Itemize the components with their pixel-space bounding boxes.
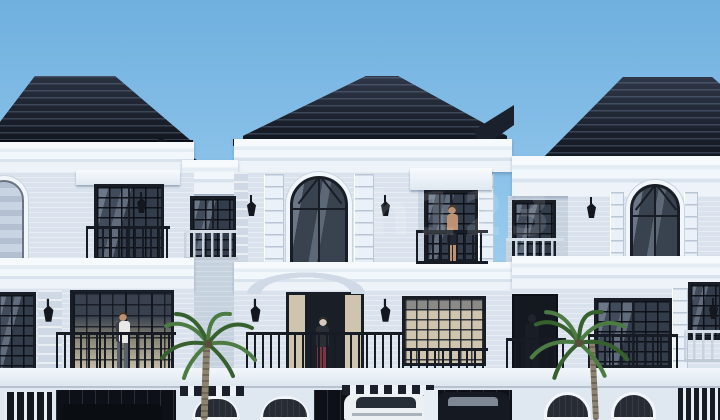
dark-suv bbox=[438, 392, 510, 420]
right-arch-window bbox=[626, 180, 684, 266]
townhouse-rendering: h123 bbox=[0, 0, 720, 420]
arch-transom bbox=[633, 215, 677, 217]
middle-arch-glass bbox=[290, 176, 348, 266]
palm-right-fronds bbox=[526, 304, 632, 386]
suv-windshield bbox=[356, 397, 416, 408]
middle-2f-wall-lamp-left-icon bbox=[246, 195, 257, 219]
arch-transom bbox=[293, 208, 345, 210]
person-head bbox=[319, 317, 327, 326]
middle-1f-wall-lamp-right-icon bbox=[379, 299, 391, 325]
car-in-left-garage bbox=[62, 404, 162, 420]
left-cornice bbox=[0, 142, 194, 172]
right-2f-wall-lamp-icon bbox=[586, 197, 597, 221]
left-window-header bbox=[76, 170, 180, 185]
middle-garage-column bbox=[424, 390, 438, 420]
connector-left-railing bbox=[184, 230, 238, 260]
dark-suv-windshield bbox=[448, 397, 498, 406]
middle-arch-quoin-left bbox=[264, 174, 284, 272]
arch-grille bbox=[547, 395, 588, 417]
middle-arch-window bbox=[286, 172, 352, 264]
left-edge-1f-window bbox=[0, 292, 36, 374]
watermark: h123 bbox=[368, 180, 556, 250]
left-transom-row bbox=[180, 386, 244, 396]
arch-grille bbox=[263, 399, 307, 417]
right-edge-railing bbox=[684, 330, 720, 362]
middle-door-pediment bbox=[240, 264, 372, 294]
left-floor-divider bbox=[0, 258, 194, 290]
left-fence-slats bbox=[4, 392, 52, 420]
arch-fan-muntin bbox=[319, 176, 342, 204]
arch-fan-muntin bbox=[655, 184, 677, 210]
person-head bbox=[119, 312, 127, 321]
right-garage-slats bbox=[678, 388, 720, 420]
suv-grille bbox=[352, 413, 422, 416]
left-2f-wall-lamp-icon bbox=[136, 192, 147, 216]
arch-grille bbox=[614, 395, 653, 417]
white-suv bbox=[344, 394, 430, 420]
arch-mullion bbox=[654, 187, 656, 265]
left-1f-wall-lamp-icon bbox=[42, 299, 54, 325]
arch-mullion bbox=[318, 179, 320, 263]
right-1f-wall-lamp-icon bbox=[708, 298, 719, 322]
palm-left-fronds bbox=[156, 306, 260, 386]
